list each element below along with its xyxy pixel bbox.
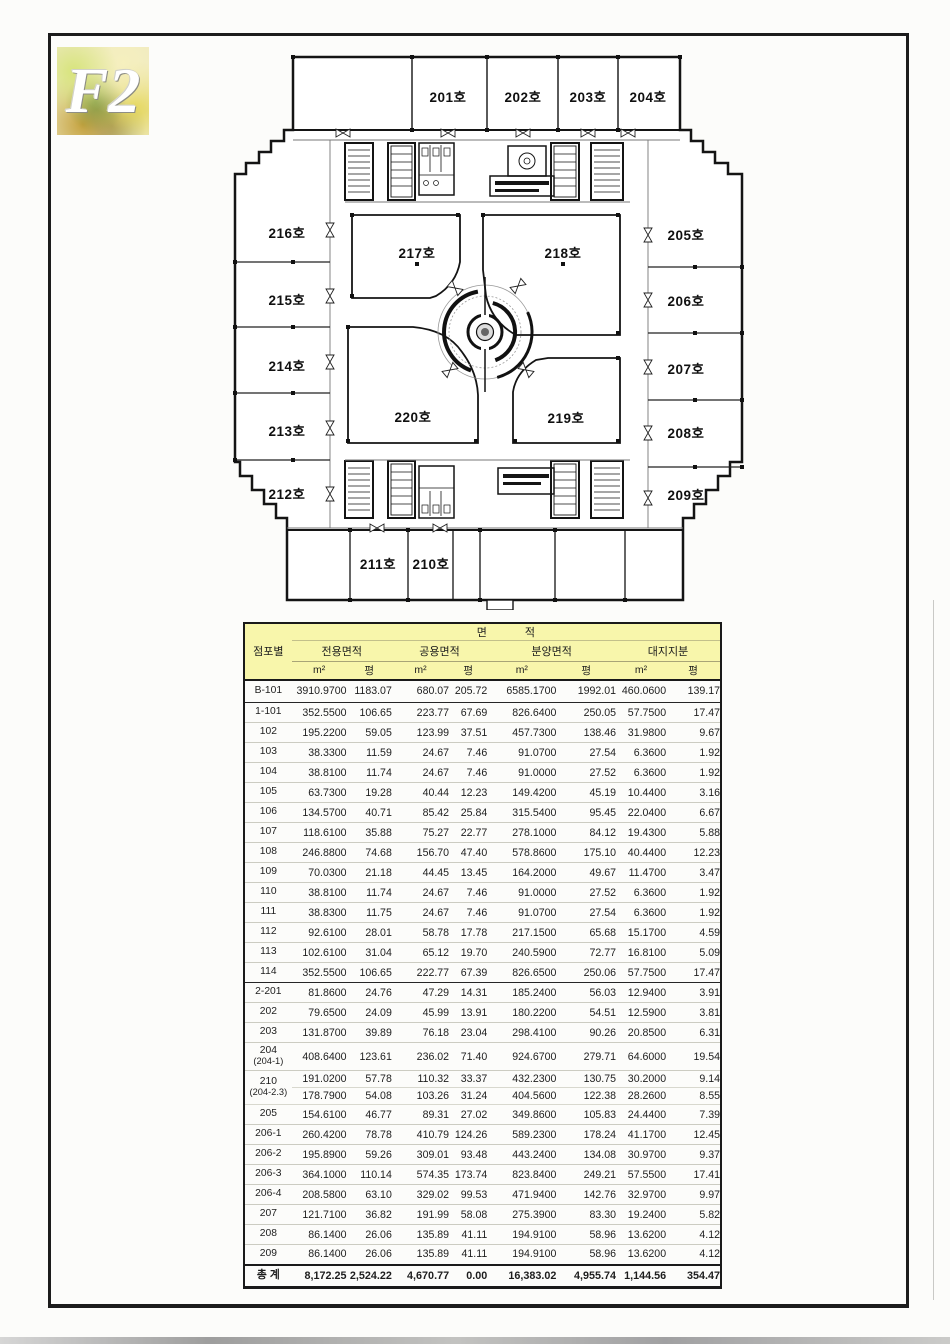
table-cell: 5.82 <box>666 1205 721 1225</box>
table-cell: 11.75 <box>347 903 392 923</box>
store-id-cell: 206-3 <box>244 1165 292 1185</box>
table-cell: 91.0700 <box>487 743 556 763</box>
table-cell: 4.12 <box>666 1225 721 1245</box>
table-cell: 130.75 <box>556 1071 616 1088</box>
store-id-cell: 104 <box>244 763 292 783</box>
column-mark <box>740 265 744 269</box>
column-mark <box>623 598 627 602</box>
table-cell: 26.06 <box>347 1225 392 1245</box>
table-cell: 8,172.25 <box>292 1265 347 1288</box>
column-mark <box>693 465 697 469</box>
table-cell: 240.5900 <box>487 943 556 963</box>
table-cell: 178.7900 <box>292 1088 347 1105</box>
table-cell: 24.76 <box>347 983 392 1003</box>
table-cell: 86.1400 <box>292 1245 347 1265</box>
table-cell: 457.7300 <box>487 723 556 743</box>
table-cell: 3.16 <box>666 783 721 803</box>
column-mark <box>291 55 295 59</box>
table-row: 203131.870039.8976.1823.04298.410090.262… <box>244 1023 721 1043</box>
table-cell: 217.1500 <box>487 923 556 943</box>
table-cell: 222.77 <box>392 963 449 983</box>
table-cell: 99.53 <box>449 1185 487 1205</box>
table-cell: 352.5500 <box>292 963 347 983</box>
table-body: B-1013910.97001183.07680.07205.726585.17… <box>244 680 721 1288</box>
table-cell: 175.10 <box>556 843 616 863</box>
table-cell: 45.99 <box>392 1003 449 1023</box>
column-mark <box>485 55 489 59</box>
table-cell: 123.61 <box>347 1043 392 1071</box>
column-mark <box>350 294 354 298</box>
table-cell: 19.2400 <box>616 1205 666 1225</box>
table-cell: 63.7300 <box>292 783 347 803</box>
column-mark <box>693 265 697 269</box>
table-cell: 329.02 <box>392 1185 449 1205</box>
table-cell: 103.26 <box>392 1088 449 1105</box>
table-cell: 2,524.22 <box>347 1265 392 1288</box>
table-cell: 74.68 <box>347 843 392 863</box>
store-id-cell: 206-2 <box>244 1145 292 1165</box>
table-cell: 41.11 <box>449 1225 487 1245</box>
column-mark <box>478 598 482 602</box>
table-cell: 58.08 <box>449 1205 487 1225</box>
table-row: 178.790054.08103.2631.24404.5600122.3828… <box>244 1088 721 1105</box>
table-cell: 138.46 <box>556 723 616 743</box>
table-cell: 89.31 <box>392 1105 449 1125</box>
store-id-cell: 108 <box>244 843 292 863</box>
table-cell: 31.24 <box>449 1088 487 1105</box>
store-id-cell: 114 <box>244 963 292 983</box>
table-cell: 27.54 <box>556 903 616 923</box>
table-cell: 223.77 <box>392 703 449 723</box>
column-mark <box>616 128 620 132</box>
scan-artifact-line <box>933 600 934 1300</box>
table-cell: 35.88 <box>347 823 392 843</box>
area-span-char-1: 면 <box>477 624 487 640</box>
table-cell: 250.05 <box>556 703 616 723</box>
table-cell: 41.1700 <box>616 1125 666 1145</box>
table-cell: 135.89 <box>392 1225 449 1245</box>
table-cell: 826.6400 <box>487 703 556 723</box>
table-row: 10438.810011.7424.677.4691.000027.526.36… <box>244 763 721 783</box>
table-cell: 63.10 <box>347 1185 392 1205</box>
table-cell: 59.26 <box>347 1145 392 1165</box>
table-cell: 349.8600 <box>487 1105 556 1125</box>
table-cell: 38.8100 <box>292 763 347 783</box>
table-cell: 32.9700 <box>616 1185 666 1205</box>
table-cell: 27.52 <box>556 883 616 903</box>
table-cell: 14.31 <box>449 983 487 1003</box>
table-cell: 4.12 <box>666 1245 721 1265</box>
store-id-cell: 2-201 <box>244 983 292 1003</box>
table-cell: 95.45 <box>556 803 616 823</box>
column-mark <box>350 213 354 217</box>
table-cell: 1.92 <box>666 743 721 763</box>
store-id-cell: 208 <box>244 1225 292 1245</box>
table-row: 11138.830011.7524.677.4691.070027.546.36… <box>244 903 721 923</box>
table-row: 10970.030021.1844.4513.45164.200049.6711… <box>244 863 721 883</box>
table-cell: 65.68 <box>556 923 616 943</box>
store-id-cell: 113 <box>244 943 292 963</box>
store-id-cell: 210(204-2.3) <box>244 1071 292 1105</box>
table-cell: 8.55 <box>666 1088 721 1105</box>
store-id-cell: 204(204-1) <box>244 1043 292 1071</box>
table-cell: 27.54 <box>556 743 616 763</box>
table-cell: 90.26 <box>556 1023 616 1043</box>
table-cell: 46.77 <box>347 1105 392 1125</box>
table-cell: 24.67 <box>392 903 449 923</box>
table-cell: 16,383.02 <box>487 1265 556 1288</box>
column-mark <box>693 331 697 335</box>
unit-m2: m² <box>292 662 347 680</box>
table-cell: 11.4700 <box>616 863 666 883</box>
table-cell: 9.37 <box>666 1145 721 1165</box>
table-cell: 404.5600 <box>487 1088 556 1105</box>
table-cell: 17.47 <box>666 963 721 983</box>
table-cell: 57.5500 <box>616 1165 666 1185</box>
table-cell: 30.2000 <box>616 1071 666 1088</box>
table-cell: 67.39 <box>449 963 487 983</box>
unit-pyeong: 평 <box>666 662 721 680</box>
table-cell: 4,955.74 <box>556 1265 616 1288</box>
table-cell: 92.6100 <box>292 923 347 943</box>
table-cell: 28.01 <box>347 923 392 943</box>
table-cell: 134.5700 <box>292 803 347 823</box>
column-mark <box>415 262 419 266</box>
table-cell: 13.45 <box>449 863 487 883</box>
table-cell: 578.8600 <box>487 843 556 863</box>
table-row: 107118.610035.8875.2722.77278.100084.121… <box>244 823 721 843</box>
table-cell: 298.4100 <box>487 1023 556 1043</box>
table-cell: 185.2400 <box>487 983 556 1003</box>
store-id-cell: B-101 <box>244 680 292 703</box>
table-row: 114352.5500106.65222.7767.39826.6500250.… <box>244 963 721 983</box>
table-cell: 9.67 <box>666 723 721 743</box>
table-cell: 194.9100 <box>487 1225 556 1245</box>
table-cell: 25.84 <box>449 803 487 823</box>
table-row: 106134.570040.7185.4225.84315.540095.452… <box>244 803 721 823</box>
table-cell: 12.23 <box>449 783 487 803</box>
table-cell: 91.0000 <box>487 763 556 783</box>
unit-pyeong: 평 <box>449 662 487 680</box>
table-cell: 58.96 <box>556 1245 616 1265</box>
table-cell: 57.7500 <box>616 963 666 983</box>
table-cell: 31.9800 <box>616 723 666 743</box>
area-span-char-2: 적 <box>525 624 535 640</box>
scanned-floor-plan-page: F2 <box>0 0 950 1344</box>
column-mark <box>616 213 620 217</box>
table-cell: 17.78 <box>449 923 487 943</box>
table-cell: 19.54 <box>666 1043 721 1071</box>
table-cell: 19.4300 <box>616 823 666 843</box>
table-cell: 10.4400 <box>616 783 666 803</box>
table-cell: 93.48 <box>449 1145 487 1165</box>
unit-m2: m² <box>487 662 556 680</box>
table-row: 204(204-1)408.6400123.61236.0271.40924.6… <box>244 1043 721 1071</box>
column-mark <box>233 260 237 264</box>
table-cell: 315.5400 <box>487 803 556 823</box>
table-row: 108246.880074.68156.7047.40578.8600175.1… <box>244 843 721 863</box>
column-mark <box>346 439 350 443</box>
table-cell: 275.3900 <box>487 1205 556 1225</box>
table-cell: 23.04 <box>449 1023 487 1043</box>
table-cell: 249.21 <box>556 1165 616 1185</box>
table-row: 2-20181.860024.7647.2914.31185.240056.03… <box>244 983 721 1003</box>
table-cell: 1,144.56 <box>616 1265 666 1288</box>
table-row: 205154.610046.7789.3127.02349.8600105.83… <box>244 1105 721 1125</box>
table-row: 10338.330011.5924.677.4691.070027.546.36… <box>244 743 721 763</box>
column-mark <box>410 128 414 132</box>
table-cell: 102.6100 <box>292 943 347 963</box>
table-cell: 27.02 <box>449 1105 487 1125</box>
column-mark <box>233 325 237 329</box>
table-cell: 105.83 <box>556 1105 616 1125</box>
table-cell: 246.8800 <box>292 843 347 863</box>
table-cell: 122.38 <box>556 1088 616 1105</box>
column-mark <box>740 398 744 402</box>
col-header-land-share: 대지지분 <box>616 641 721 662</box>
table-cell: 70.0300 <box>292 863 347 883</box>
table-cell: 44.45 <box>392 863 449 883</box>
table-cell: 28.2600 <box>616 1088 666 1105</box>
column-mark <box>678 55 682 59</box>
table-cell: 36.82 <box>347 1205 392 1225</box>
table-cell: 279.71 <box>556 1043 616 1071</box>
unit-m2: m² <box>616 662 666 680</box>
table-cell: 0.00 <box>449 1265 487 1288</box>
table-cell: 443.2400 <box>487 1145 556 1165</box>
col-header-exclusive-area: 전용면적 <box>292 641 392 662</box>
table-cell: 31.04 <box>347 943 392 963</box>
table-row: 206-3364.1000110.14574.35173.74823.84002… <box>244 1165 721 1185</box>
table-cell: 924.6700 <box>487 1043 556 1071</box>
col-header-store: 점포별 <box>244 623 292 680</box>
column-mark <box>740 465 744 469</box>
table-cell: 33.37 <box>449 1071 487 1088</box>
table-cell: 3910.9700 <box>292 680 347 703</box>
area-schedule-table: 점포별 면적 전용면적 공용면적 분양면적 대지지분 m² 평 m² 평 m² <box>243 622 722 1289</box>
table-cell: 364.1000 <box>292 1165 347 1185</box>
column-mark <box>410 55 414 59</box>
table-row: 20279.650024.0945.9913.91180.220054.5112… <box>244 1003 721 1023</box>
column-mark <box>233 458 237 462</box>
table-cell: 67.69 <box>449 703 487 723</box>
table-cell: 86.1400 <box>292 1225 347 1245</box>
table-cell: 106.65 <box>347 963 392 983</box>
column-mark <box>556 55 560 59</box>
table-cell: 309.01 <box>392 1145 449 1165</box>
table-cell: 57.7500 <box>616 703 666 723</box>
unit-pyeong: 평 <box>347 662 392 680</box>
unit-217-outline <box>352 215 460 298</box>
table-cell: 118.6100 <box>292 823 347 843</box>
store-id-cell: 111 <box>244 903 292 923</box>
table-cell: 40.44 <box>392 783 449 803</box>
column-mark <box>693 398 697 402</box>
table-cell: 134.08 <box>556 1145 616 1165</box>
table-cell: 7.46 <box>449 743 487 763</box>
table-cell: 85.42 <box>392 803 449 823</box>
table-cell: 22.0400 <box>616 803 666 823</box>
table-cell: 7.46 <box>449 903 487 923</box>
table-cell: 5.88 <box>666 823 721 843</box>
table-cell: 13.6200 <box>616 1245 666 1265</box>
table-cell: 71.40 <box>449 1043 487 1071</box>
unit-m2: m² <box>392 662 449 680</box>
floor-stamp-label: F2 <box>57 47 149 135</box>
table-cell: 65.12 <box>392 943 449 963</box>
table-cell: 410.79 <box>392 1125 449 1145</box>
column-mark <box>406 598 410 602</box>
floor-plan-drawing <box>225 50 750 610</box>
table-cell: 149.4200 <box>487 783 556 803</box>
column-mark <box>616 439 620 443</box>
table-cell: 178.24 <box>556 1125 616 1145</box>
store-id-cell: 1-101 <box>244 703 292 723</box>
table-cell: 260.4200 <box>292 1125 347 1145</box>
table-cell: 123.99 <box>392 723 449 743</box>
table-cell: 156.70 <box>392 843 449 863</box>
table-cell: 589.2300 <box>487 1125 556 1145</box>
column-mark <box>406 528 410 532</box>
table-cell: 121.7100 <box>292 1205 347 1225</box>
table-cell: 19.28 <box>347 783 392 803</box>
table-cell: 9.14 <box>666 1071 721 1088</box>
table-cell: 13.6200 <box>616 1225 666 1245</box>
table-row: 10563.730019.2840.4412.23149.420045.1910… <box>244 783 721 803</box>
unit-pyeong: 평 <box>556 662 616 680</box>
table-cell: 278.1000 <box>487 823 556 843</box>
store-id-cell: 103 <box>244 743 292 763</box>
col-header-common-area: 공용면적 <box>392 641 487 662</box>
table-cell: 236.02 <box>392 1043 449 1071</box>
table-cell: 37.51 <box>449 723 487 743</box>
column-mark <box>456 213 460 217</box>
table-cell: 180.2200 <box>487 1003 556 1023</box>
table-cell: 20.8500 <box>616 1023 666 1043</box>
column-mark <box>561 262 565 266</box>
table-cell: 106.65 <box>347 703 392 723</box>
table-cell: 12.45 <box>666 1125 721 1145</box>
table-cell: 54.08 <box>347 1088 392 1105</box>
table-cell: 4,670.77 <box>392 1265 449 1288</box>
table-cell: 208.5800 <box>292 1185 347 1205</box>
table-cell: 45.19 <box>556 783 616 803</box>
table-cell: 11.74 <box>347 763 392 783</box>
table-cell: 826.6500 <box>487 963 556 983</box>
table-cell: 40.71 <box>347 803 392 823</box>
column-mark <box>556 128 560 132</box>
table-cell: 7.46 <box>449 763 487 783</box>
table-row: 20886.140026.06135.8941.11194.910058.961… <box>244 1225 721 1245</box>
table-cell: 11.74 <box>347 883 392 903</box>
table-cell: 352.5500 <box>292 703 347 723</box>
table-cell: 460.0600 <box>616 680 666 703</box>
table-cell: 40.4400 <box>616 843 666 863</box>
table-row: 206-2195.890059.26309.0193.48443.2400134… <box>244 1145 721 1165</box>
table-row: 206-4208.580063.10329.0299.53471.9400142… <box>244 1185 721 1205</box>
table-cell: 49.67 <box>556 863 616 883</box>
store-id-cell: 203 <box>244 1023 292 1043</box>
table-cell: 6.3600 <box>616 883 666 903</box>
table-cell: 75.27 <box>392 823 449 843</box>
table-cell: 432.2300 <box>487 1071 556 1088</box>
table-cell: 72.77 <box>556 943 616 963</box>
table-cell: 1992.01 <box>556 680 616 703</box>
column-mark <box>291 391 295 395</box>
column-mark <box>616 55 620 59</box>
store-id-cell: 107 <box>244 823 292 843</box>
column-mark <box>481 213 485 217</box>
table-header: 점포별 면적 전용면적 공용면적 분양면적 대지지분 m² 평 m² 평 m² <box>244 623 721 680</box>
table-cell: 1.92 <box>666 763 721 783</box>
store-id-cell: 110 <box>244 883 292 903</box>
column-mark <box>485 128 489 132</box>
table-cell: 54.51 <box>556 1003 616 1023</box>
table-cell: 17.41 <box>666 1165 721 1185</box>
table-cell: 250.06 <box>556 963 616 983</box>
column-mark <box>553 528 557 532</box>
column-mark <box>616 331 620 335</box>
table-row: 11292.610028.0158.7817.78217.150065.6815… <box>244 923 721 943</box>
table-cell: 574.35 <box>392 1165 449 1185</box>
table-cell: 195.2200 <box>292 723 347 743</box>
table-cell: 41.11 <box>449 1245 487 1265</box>
table-cell: 471.9400 <box>487 1185 556 1205</box>
column-mark <box>478 528 482 532</box>
table-cell: 83.30 <box>556 1205 616 1225</box>
table-cell: 6.3600 <box>616 743 666 763</box>
scan-artifact-smudge <box>0 1337 950 1344</box>
table-cell: 3.91 <box>666 983 721 1003</box>
table-cell: 1183.07 <box>347 680 392 703</box>
store-id-cell: 202 <box>244 1003 292 1023</box>
unit-218-outline <box>483 215 620 335</box>
table-cell: 1.92 <box>666 883 721 903</box>
col-header-sale-area: 분양면적 <box>487 641 616 662</box>
table-cell: 84.12 <box>556 823 616 843</box>
table-cell: 6585.1700 <box>487 680 556 703</box>
column-mark <box>513 439 517 443</box>
table-cell: 139.17 <box>666 680 721 703</box>
table-cell: 191.0200 <box>292 1071 347 1088</box>
column-mark <box>346 325 350 329</box>
column-mark <box>291 325 295 329</box>
table-cell: 24.67 <box>392 883 449 903</box>
table-cell: 131.8700 <box>292 1023 347 1043</box>
column-mark <box>616 356 620 360</box>
table-row: 206-1260.420078.78410.79124.26589.230017… <box>244 1125 721 1145</box>
table-cell: 124.26 <box>449 1125 487 1145</box>
table-cell: 16.8100 <box>616 943 666 963</box>
table-row: 1-101352.5500106.65223.7767.69826.640025… <box>244 703 721 723</box>
table-cell: 38.8300 <box>292 903 347 923</box>
column-mark <box>474 439 478 443</box>
table-cell: 194.9100 <box>487 1245 556 1265</box>
table-cell: 4.59 <box>666 923 721 943</box>
column-mark <box>553 598 557 602</box>
table-cell: 58.78 <box>392 923 449 943</box>
table-cell: 58.96 <box>556 1225 616 1245</box>
table-cell: 26.06 <box>347 1245 392 1265</box>
table-cell: 7.39 <box>666 1105 721 1125</box>
table-cell: 408.6400 <box>292 1043 347 1071</box>
table-cell: 3.47 <box>666 863 721 883</box>
table-cell: 5.09 <box>666 943 721 963</box>
store-id-cell: 106 <box>244 803 292 823</box>
table-cell: 57.78 <box>347 1071 392 1088</box>
table-cell: 7.46 <box>449 883 487 903</box>
table-row: 102195.220059.05123.9937.51457.7300138.4… <box>244 723 721 743</box>
